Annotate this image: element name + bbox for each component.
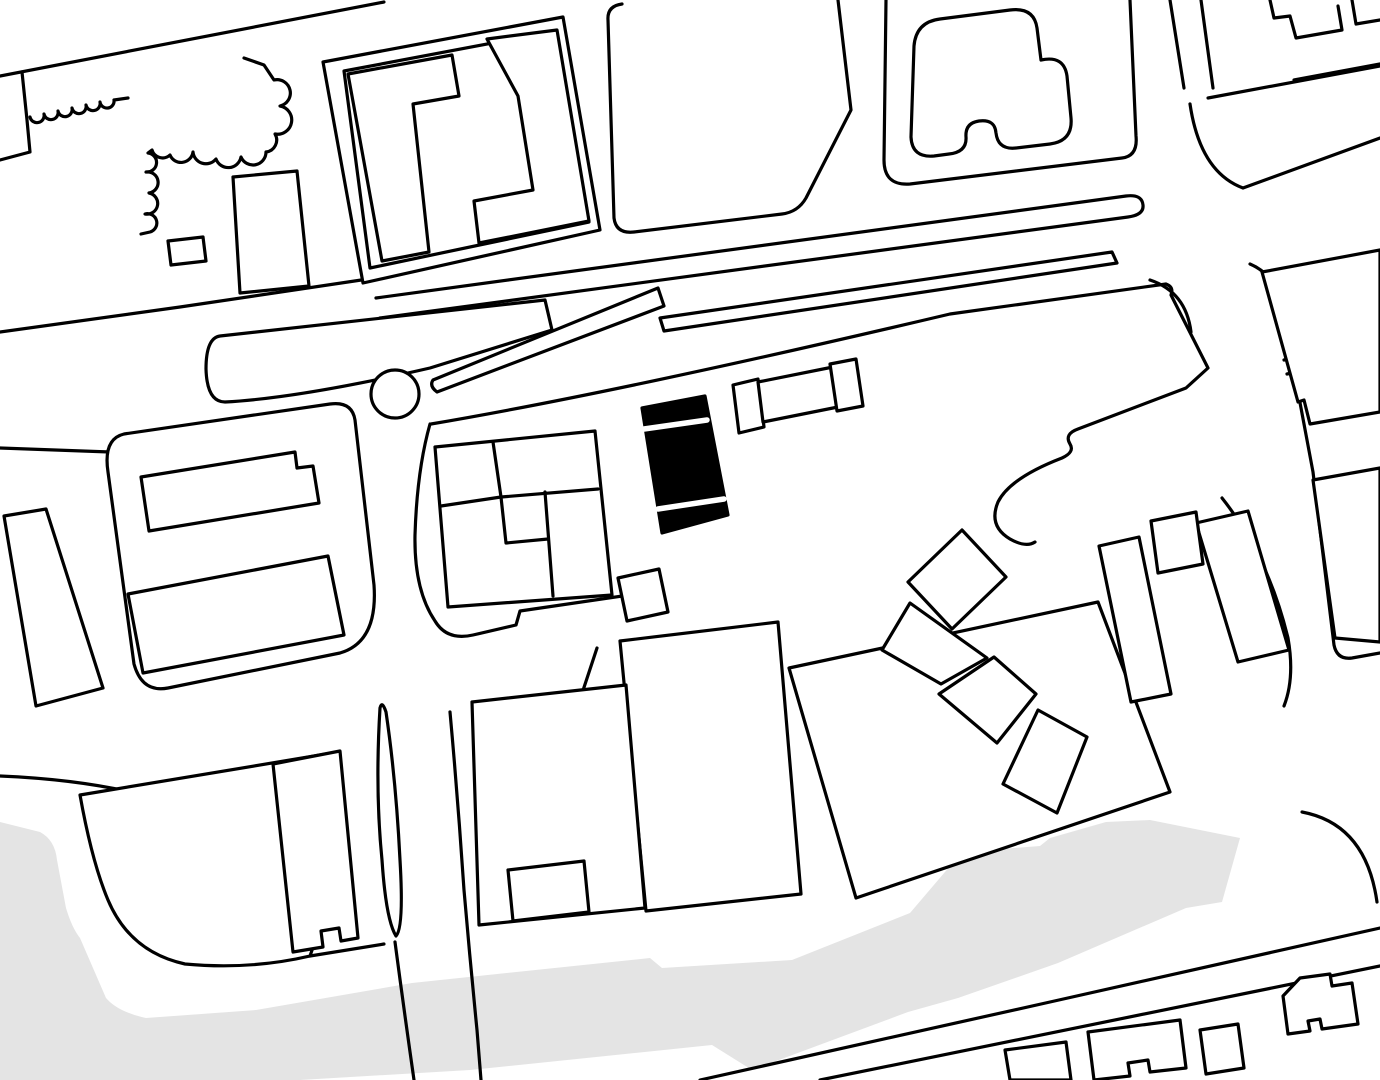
street-left-stub (0, 448, 110, 452)
building-left-angled (4, 509, 103, 706)
building-central-rect (620, 622, 801, 911)
topright-parapet-2 (1352, 0, 1380, 24)
highlighted-project-building (642, 396, 728, 533)
roundabout (371, 370, 419, 418)
street-upper-right-east-edge (1201, 0, 1213, 88)
street-topleft-parcel-edge (0, 72, 30, 160)
block-top-center-rounded (608, 0, 851, 232)
building-bottom-center-annex (508, 861, 589, 921)
building-blob-topright-block (911, 10, 1071, 157)
building-clapper-bar (618, 569, 668, 621)
street-topblocks-south-edge (0, 279, 368, 332)
topright-parapet-1 (1270, 0, 1342, 38)
sliver-island (378, 705, 401, 936)
building-right-upper (1262, 250, 1380, 424)
building-bottomright-1 (1005, 1042, 1071, 1080)
building-barbell-right (830, 359, 863, 411)
site-plan-map (0, 0, 1380, 1080)
site-plan-page (0, 0, 1380, 1080)
block-square-cluster-outer (435, 431, 612, 607)
building-bottomright-2 (1088, 1020, 1186, 1080)
building-topleft-tall (233, 171, 309, 293)
building-bottomright-4 (1283, 974, 1358, 1034)
street-upper-right-corner-curve (1190, 104, 1380, 188)
scalloped-wall (30, 98, 128, 123)
street-upper-right-west-edge (1170, 0, 1184, 88)
building-topleft-small (168, 237, 206, 265)
street-topright-avenue-edge (1208, 66, 1380, 98)
highlight-layer (642, 396, 728, 533)
building-slant-square (1151, 512, 1203, 573)
building-barbell-middle (758, 367, 838, 422)
building-slant-bar-2 (1196, 511, 1289, 662)
street-bottomright-corner-curve (1302, 812, 1377, 902)
tram-wedge-island (660, 252, 1117, 331)
building-bottomright-3 (1200, 1024, 1244, 1074)
topright-building-baseline (1294, 64, 1380, 80)
building-right-lower (1313, 468, 1380, 642)
